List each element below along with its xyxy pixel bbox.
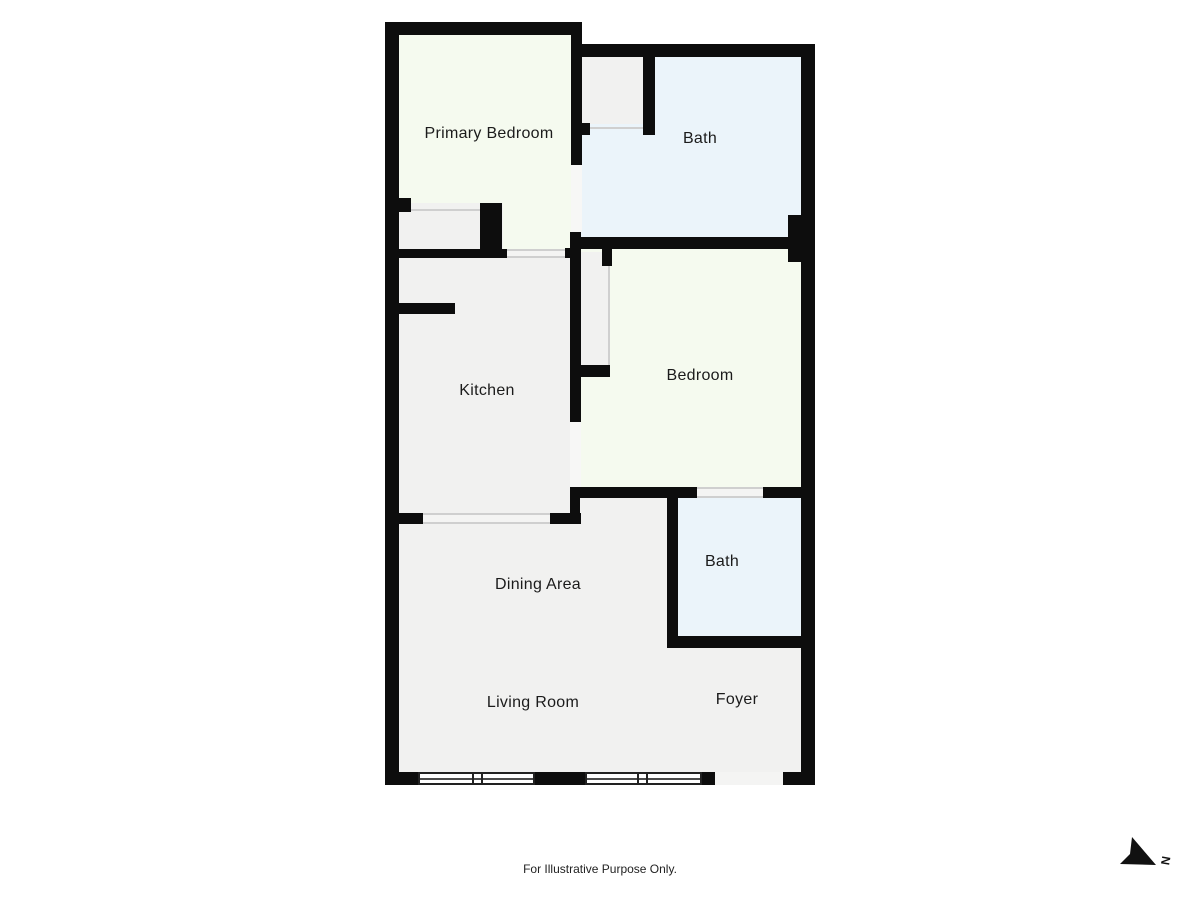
door-opening [411, 209, 480, 211]
wall-segment [763, 487, 815, 498]
wall-segment [602, 249, 612, 266]
wall-segment [385, 22, 582, 35]
wall-segment [399, 198, 411, 212]
wall-segment [788, 215, 815, 262]
wall-segment [399, 303, 455, 314]
window-glass-line [587, 778, 700, 780]
wall-segment [571, 22, 582, 165]
room-label-primary-bedroom: Primary Bedroom [425, 125, 554, 143]
wall-segment [570, 232, 581, 422]
wall-segment [535, 772, 585, 785]
wall-segment [570, 487, 580, 524]
room-label-living: Living Room [487, 694, 579, 712]
room-label-bath-lower: Bath [705, 553, 739, 571]
window-mullion [646, 774, 648, 783]
north-letter: N [1155, 855, 1174, 874]
wall-segment [578, 123, 590, 135]
door-opening [697, 487, 763, 498]
window-symbol [418, 772, 535, 785]
wall-segment [643, 44, 655, 135]
wall-segment [576, 237, 788, 249]
room-label-kitchen: Kitchen [459, 382, 514, 400]
wall-segment [385, 22, 399, 785]
door-opening [570, 422, 581, 487]
wall-segment [385, 772, 418, 785]
door-opening [507, 249, 567, 258]
disclaimer-text: For Illustrative Purpose Only. [523, 862, 677, 876]
window-mullion [481, 774, 483, 783]
room-label-foyer: Foyer [716, 691, 758, 709]
wall-segment [783, 772, 815, 785]
wall-segment [667, 636, 815, 648]
floor-bath-closet [581, 57, 643, 124]
wall-segment [801, 44, 815, 785]
wall-segment [480, 203, 502, 252]
wall-segment [385, 513, 423, 524]
window-glass-line [420, 778, 533, 780]
room-label-dining: Dining Area [495, 576, 581, 594]
room-label-bath-top: Bath [683, 130, 717, 148]
window-mullion [472, 774, 474, 783]
wall-segment [399, 249, 507, 258]
wall-segment [578, 365, 610, 377]
entry-door-opening [715, 772, 783, 785]
floor-bedroom-closet [581, 252, 610, 369]
door-opening [590, 127, 643, 129]
floor-plan-canvas: Primary Bedroom Bath Kitchen Bedroom Bat… [0, 0, 1200, 900]
room-label-bedroom: Bedroom [666, 367, 733, 385]
window-mullion [637, 774, 639, 783]
wall-segment [667, 487, 678, 647]
wall-segment [576, 44, 815, 57]
door-opening [608, 266, 610, 365]
wall-segment [702, 772, 715, 785]
door-opening [571, 165, 582, 232]
wall-segment [565, 248, 581, 258]
door-opening [423, 513, 550, 524]
window-symbol [585, 772, 702, 785]
